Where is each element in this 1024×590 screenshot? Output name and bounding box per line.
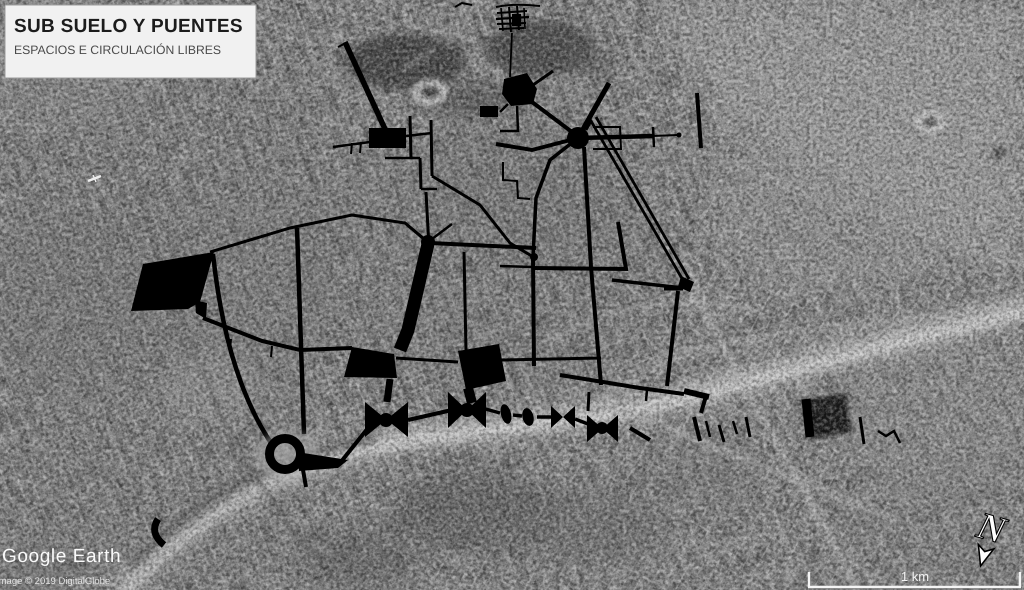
svg-text:SUB SUELO Y PUENTES: SUB SUELO Y PUENTES (14, 16, 243, 37)
svg-text:Image © 2019 DigitalGlobe: Image © 2019 DigitalGlobe (0, 576, 110, 587)
svg-text:ESPACIOS E CIRCULACIÓN LIBRES: ESPACIOS E CIRCULACIÓN LIBRES (14, 43, 221, 57)
svg-text:1 km: 1 km (901, 569, 929, 584)
svg-text:Google Earth: Google Earth (2, 546, 121, 567)
